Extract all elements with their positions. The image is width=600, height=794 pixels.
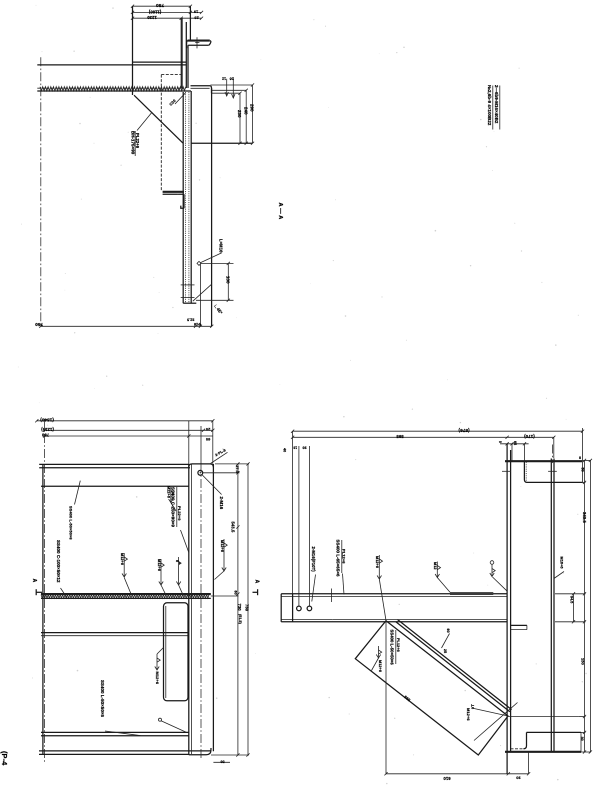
svg-text:26: 26	[230, 77, 234, 81]
svg-text:60: 60	[206, 437, 210, 441]
svg-text:L=M16: L=M16	[219, 239, 224, 253]
svg-text:2-M16: 2-M16	[219, 497, 224, 510]
svg-text:13: 13	[293, 446, 297, 450]
svg-text:Φ16: Φ16	[194, 322, 201, 326]
svg-text:230: 230	[237, 110, 242, 118]
svg-text:12: 12	[222, 77, 226, 81]
svg-text:(876): (876)	[458, 428, 470, 433]
svg-text:65: 65	[513, 441, 517, 445]
svg-text:SS400 L-50×50×6: SS400 L-50×50×6	[68, 506, 73, 540]
svg-text:M12+6: M12+6	[220, 540, 224, 552]
svg-text:M12+6: M12+6	[466, 708, 471, 721]
svg-text:150: 150	[581, 658, 586, 666]
svg-text:A — A: A — A	[277, 203, 283, 220]
svg-text:№2,6b-9 4×100B22: №2,6b-9 4×100B22	[487, 85, 492, 126]
svg-text:750: 750	[244, 604, 249, 612]
svg-text:M12+6: M12+6	[157, 559, 161, 571]
svg-text:6: 6	[175, 560, 179, 562]
svg-text:SS400 L-50×50×6: SS400 L-50×50×6	[390, 630, 395, 666]
svg-text:2-M16(F10T): 2-M16(F10T)	[311, 547, 316, 573]
svg-text:610: 610	[443, 776, 451, 781]
svg-text:730: 730	[237, 604, 242, 612]
svg-text:PL12+6: PL12+6	[341, 549, 346, 564]
svg-text:20: 20	[206, 427, 210, 431]
svg-text:750: 750	[156, 2, 164, 8]
svg-text:343.5: 343.5	[582, 512, 587, 523]
svg-text:750: 750	[35, 322, 43, 327]
svg-text:(P-4: (P-4	[0, 751, 9, 766]
svg-text:27.5: 27.5	[235, 466, 239, 473]
svg-text:25: 25	[443, 649, 447, 653]
svg-text:94.5: 94.5	[569, 596, 573, 603]
svg-text:30: 30	[302, 446, 306, 450]
svg-text:M12+6: M12+6	[375, 556, 379, 568]
svg-text:A: A	[31, 579, 37, 583]
svg-text:50: 50	[580, 468, 584, 472]
svg-text:SS400 C-100×50×12: SS400 C-100×50×12	[56, 540, 61, 583]
svg-text:(51.5): (51.5)	[238, 614, 242, 624]
svg-text:5: 5	[498, 441, 502, 443]
svg-text:M16+6: M16+6	[559, 557, 563, 569]
svg-text:(170): (170)	[524, 434, 535, 439]
svg-text:19: 19	[194, 10, 198, 14]
svg-text:PL22+9: PL22+9	[177, 506, 182, 521]
svg-text:290: 290	[250, 104, 255, 112]
svg-text:(1160): (1160)	[148, 9, 161, 14]
svg-text:M22+6: M22+6	[167, 486, 171, 498]
svg-text:20: 20	[194, 15, 198, 19]
svg-text:750: 750	[41, 433, 49, 438]
svg-text:32.5: 32.5	[187, 318, 194, 322]
svg-text:SS400 C-250×90×9: SS400 C-250×90×9	[170, 487, 175, 527]
svg-text:60: 60	[234, 591, 238, 595]
svg-text:PL12+6: PL12+6	[396, 638, 400, 652]
svg-text:100: 100	[226, 276, 231, 284]
svg-text:50: 50	[220, 760, 224, 764]
svg-text:A: A	[253, 580, 259, 584]
svg-text:M12+6: M12+6	[120, 553, 124, 565]
svg-text:2—6b9-M16×40B2: 2—6b9-M16×40B2	[494, 85, 499, 124]
svg-text:8: 8	[579, 456, 581, 460]
svg-text:60: 60	[446, 629, 450, 633]
svg-text:40: 40	[283, 448, 287, 452]
svg-text:(1215): (1215)	[41, 427, 54, 432]
svg-text:M12+6: M12+6	[155, 672, 160, 685]
svg-text:595: 595	[396, 434, 404, 439]
svg-text:SS400 L-65×65×6: SS400 L-65×65×6	[336, 540, 341, 577]
svg-text:1230: 1230	[147, 15, 157, 20]
svg-text:⊥6: ⊥6	[471, 704, 475, 709]
svg-text:(1840): (1840)	[40, 418, 54, 423]
svg-text:543.5: 543.5	[231, 522, 236, 533]
svg-text:240: 240	[243, 107, 248, 115]
svg-text:30: 30	[580, 737, 584, 741]
svg-text:M12: M12	[433, 562, 437, 570]
svg-text:30: 30	[516, 776, 520, 780]
svg-text:PL22+9: PL22+9	[135, 133, 140, 149]
svg-text:SS400 L-50×50×6: SS400 L-50×50×6	[100, 680, 105, 717]
svg-text:M12+6: M12+6	[378, 660, 382, 672]
